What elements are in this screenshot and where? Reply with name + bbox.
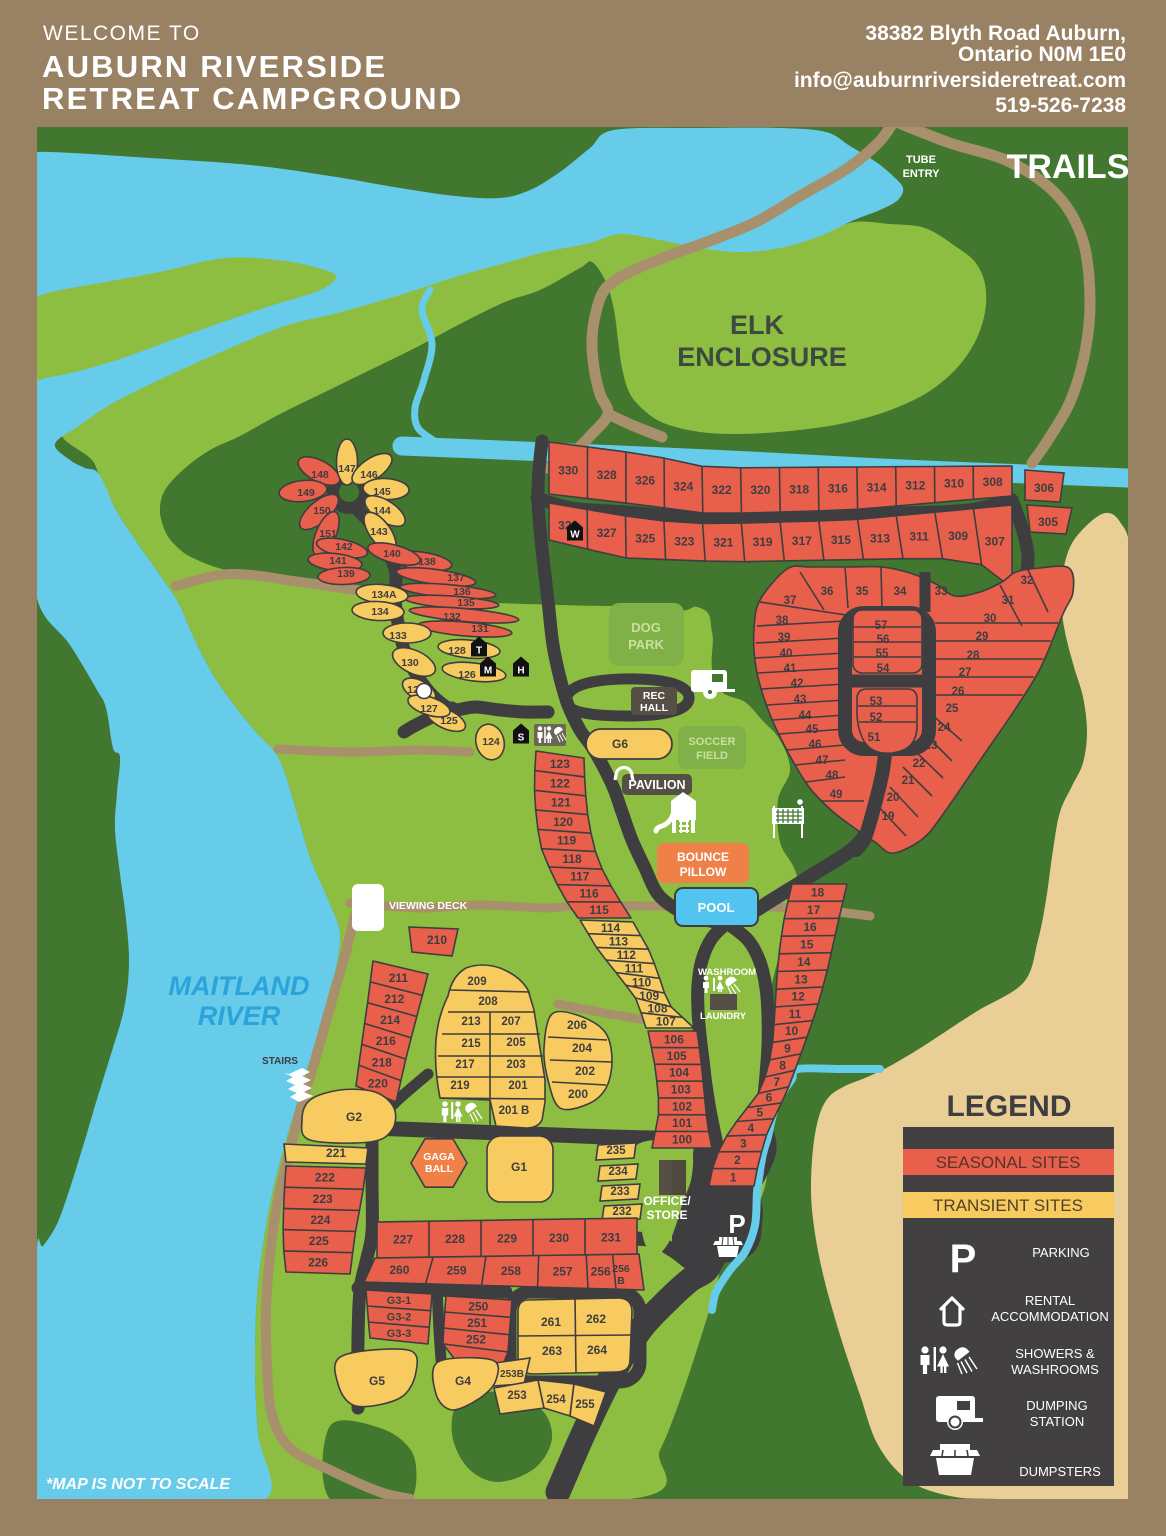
svg-text:227: 227 — [393, 1233, 413, 1247]
svg-text:214: 214 — [380, 1013, 400, 1027]
svg-text:220: 220 — [368, 1076, 388, 1090]
svg-text:38382 Blyth Road Auburn,: 38382 Blyth Road Auburn, — [865, 22, 1126, 45]
svg-text:BOUNCE: BOUNCE — [677, 850, 729, 864]
svg-text:260: 260 — [389, 1263, 409, 1277]
svg-text:G3-1: G3-1 — [387, 1295, 411, 1307]
svg-text:143: 143 — [370, 526, 388, 538]
svg-text:306: 306 — [1034, 481, 1054, 495]
svg-text:232: 232 — [612, 1206, 631, 1218]
svg-text:TUBE: TUBE — [906, 154, 936, 166]
svg-text:DUMPING: DUMPING — [1026, 1398, 1087, 1413]
svg-text:206: 206 — [567, 1018, 587, 1032]
svg-text:126: 126 — [458, 669, 476, 681]
svg-text:55: 55 — [876, 648, 889, 660]
svg-text:251: 251 — [467, 1316, 487, 1330]
svg-text:149: 149 — [297, 487, 315, 499]
svg-text:322: 322 — [712, 483, 732, 497]
svg-text:27: 27 — [959, 667, 972, 679]
svg-text:309: 309 — [948, 529, 968, 543]
svg-text:48: 48 — [826, 770, 839, 782]
svg-text:264: 264 — [587, 1343, 607, 1357]
svg-text:18: 18 — [811, 886, 825, 900]
svg-text:305: 305 — [1038, 515, 1058, 529]
svg-text:30: 30 — [984, 613, 997, 625]
svg-text:17: 17 — [807, 903, 821, 917]
svg-text:131: 131 — [471, 623, 489, 635]
svg-text:21: 21 — [902, 775, 915, 787]
svg-text:328: 328 — [597, 468, 617, 482]
svg-text:42: 42 — [791, 678, 804, 690]
svg-text:320: 320 — [750, 483, 770, 497]
svg-text:OFFICE/: OFFICE/ — [643, 1194, 691, 1208]
svg-text:219: 219 — [450, 1080, 469, 1092]
svg-text:208: 208 — [478, 996, 498, 1008]
svg-text:44: 44 — [799, 710, 812, 722]
svg-text:13: 13 — [794, 972, 808, 986]
svg-text:38: 38 — [776, 615, 789, 627]
svg-text:254: 254 — [546, 1394, 566, 1406]
svg-text:45: 45 — [806, 724, 819, 736]
svg-text:STAIRS: STAIRS — [262, 1056, 298, 1067]
svg-text:130: 130 — [401, 657, 419, 669]
svg-text:STORE: STORE — [646, 1208, 687, 1222]
svg-text:47: 47 — [816, 755, 829, 767]
svg-text:57: 57 — [875, 620, 888, 632]
svg-text:519-526-7238: 519-526-7238 — [995, 94, 1126, 117]
svg-text:327: 327 — [597, 526, 617, 540]
svg-text:WELCOME TO: WELCOME TO — [43, 22, 201, 45]
svg-text:DUMPSTERS: DUMPSTERS — [1019, 1464, 1101, 1479]
svg-text:319: 319 — [753, 535, 773, 549]
svg-text:200: 200 — [568, 1087, 588, 1101]
svg-text:257: 257 — [553, 1264, 573, 1278]
svg-text:307: 307 — [985, 535, 1005, 549]
svg-text:211: 211 — [389, 971, 409, 985]
svg-text:228: 228 — [445, 1232, 465, 1246]
svg-text:224: 224 — [310, 1213, 330, 1227]
svg-text:56: 56 — [877, 634, 890, 646]
svg-text:25: 25 — [946, 703, 959, 715]
svg-text:253B: 253B — [500, 1369, 524, 1380]
svg-text:262: 262 — [586, 1312, 606, 1326]
svg-text:314: 314 — [867, 480, 887, 494]
svg-text:117: 117 — [570, 870, 590, 884]
svg-text:5: 5 — [756, 1106, 763, 1120]
svg-text:41: 41 — [784, 663, 797, 675]
svg-text:PAVILION: PAVILION — [628, 778, 685, 792]
svg-text:326: 326 — [635, 473, 655, 487]
svg-text:TRAILS: TRAILS — [1007, 148, 1130, 186]
svg-text:127: 127 — [420, 703, 438, 715]
svg-text:RETREAT CAMPGROUND: RETREAT CAMPGROUND — [42, 81, 463, 116]
svg-text:263: 263 — [542, 1344, 562, 1358]
svg-text:101: 101 — [672, 1116, 692, 1130]
svg-text:116: 116 — [579, 887, 599, 901]
svg-text:318: 318 — [789, 482, 809, 496]
svg-text:110: 110 — [632, 975, 652, 989]
svg-text:28: 28 — [967, 650, 980, 662]
svg-text:217: 217 — [455, 1059, 474, 1071]
svg-text:RIVER: RIVER — [198, 1001, 281, 1031]
svg-text:111: 111 — [625, 962, 644, 976]
svg-text:203: 203 — [506, 1059, 525, 1071]
svg-text:53: 53 — [870, 696, 883, 708]
svg-text:122: 122 — [550, 776, 570, 790]
svg-text:14: 14 — [797, 955, 811, 969]
svg-text:315: 315 — [831, 533, 851, 547]
svg-text:*MAP IS NOT TO SCALE: *MAP IS NOT TO SCALE — [46, 1476, 231, 1493]
svg-text:215: 215 — [461, 1038, 481, 1050]
svg-text:250: 250 — [468, 1299, 488, 1313]
svg-text:308: 308 — [983, 475, 1003, 489]
svg-text:313: 313 — [870, 531, 890, 545]
svg-text:255: 255 — [575, 1399, 595, 1411]
svg-text:231: 231 — [601, 1230, 621, 1244]
svg-text:256: 256 — [591, 1265, 611, 1279]
svg-text:G3-3: G3-3 — [387, 1328, 411, 1340]
svg-text:210: 210 — [427, 933, 447, 947]
svg-text:32: 32 — [1021, 575, 1034, 587]
svg-text:M: M — [484, 666, 492, 677]
svg-text:115: 115 — [590, 903, 610, 917]
svg-text:10: 10 — [785, 1024, 799, 1038]
svg-text:G3-2: G3-2 — [387, 1312, 411, 1324]
svg-text:PARK: PARK — [628, 637, 664, 652]
svg-text:G4: G4 — [455, 1374, 471, 1388]
svg-text:B: B — [617, 1275, 625, 1287]
svg-text:BALL: BALL — [425, 1163, 454, 1175]
svg-text:114: 114 — [601, 921, 621, 935]
svg-text:SHOWERS &: SHOWERS & — [1015, 1346, 1095, 1361]
svg-text:223: 223 — [313, 1192, 333, 1206]
svg-text:PILLOW: PILLOW — [680, 865, 727, 879]
svg-text:LAUNDRY: LAUNDRY — [700, 1011, 747, 1022]
svg-text:222: 222 — [315, 1171, 335, 1185]
svg-text:138: 138 — [418, 556, 436, 568]
svg-text:259: 259 — [446, 1264, 466, 1278]
svg-text:325: 325 — [635, 532, 655, 546]
svg-text:104: 104 — [669, 1066, 689, 1080]
svg-text:LEGEND: LEGEND — [946, 1090, 1071, 1123]
svg-text:ENTRY: ENTRY — [903, 168, 941, 180]
svg-text:12: 12 — [791, 990, 805, 1004]
svg-text:MAITLAND: MAITLAND — [169, 971, 310, 1001]
svg-text:7: 7 — [773, 1075, 780, 1089]
svg-text:23: 23 — [925, 740, 938, 752]
svg-text:226: 226 — [308, 1255, 328, 1269]
svg-text:134: 134 — [371, 606, 389, 618]
svg-text:SEASONAL SITES: SEASONAL SITES — [936, 1153, 1081, 1172]
svg-text:311: 311 — [909, 529, 929, 543]
svg-text:323: 323 — [674, 534, 694, 548]
svg-text:204: 204 — [572, 1041, 592, 1055]
svg-text:205: 205 — [506, 1037, 526, 1049]
svg-text:REC: REC — [643, 690, 666, 702]
svg-text:225: 225 — [309, 1234, 329, 1248]
svg-text:6: 6 — [766, 1091, 773, 1105]
svg-text:135: 135 — [457, 597, 475, 609]
svg-text:317: 317 — [792, 534, 812, 548]
svg-text:133: 133 — [389, 630, 407, 642]
svg-text:AUBURN RIVERSIDE: AUBURN RIVERSIDE — [42, 49, 387, 84]
svg-text:31: 31 — [1002, 595, 1015, 607]
svg-text:22: 22 — [913, 758, 926, 770]
svg-text:213: 213 — [461, 1016, 480, 1028]
svg-text:134A: 134A — [371, 589, 397, 601]
svg-text:234: 234 — [608, 1166, 628, 1178]
svg-text:121: 121 — [551, 796, 571, 810]
svg-text:35: 35 — [856, 586, 869, 598]
svg-text:106: 106 — [664, 1032, 684, 1046]
svg-text:207: 207 — [501, 1016, 520, 1028]
svg-text:113: 113 — [609, 935, 629, 949]
svg-text:43: 43 — [794, 694, 807, 706]
svg-text:40: 40 — [780, 648, 793, 660]
svg-text:info@auburnriversideretreat.co: info@auburnriversideretreat.com — [794, 69, 1126, 92]
svg-text:DOG: DOG — [631, 620, 661, 635]
svg-text:105: 105 — [667, 1049, 687, 1063]
svg-text:142: 142 — [335, 541, 353, 553]
svg-text:G2: G2 — [346, 1110, 362, 1124]
svg-text:G1: G1 — [511, 1160, 527, 1174]
svg-text:128: 128 — [448, 645, 466, 657]
svg-text:230: 230 — [549, 1231, 569, 1245]
svg-text:W: W — [570, 530, 580, 541]
svg-text:H: H — [517, 666, 524, 677]
svg-text:109: 109 — [639, 989, 659, 1003]
svg-text:218: 218 — [372, 1055, 392, 1069]
svg-text:29: 29 — [976, 631, 989, 643]
svg-text:233: 233 — [610, 1186, 629, 1198]
svg-text:S: S — [518, 733, 525, 744]
svg-text:201 B: 201 B — [499, 1105, 530, 1117]
svg-text:253: 253 — [507, 1390, 526, 1402]
svg-text:49: 49 — [830, 789, 843, 801]
svg-text:11: 11 — [789, 1007, 802, 1021]
svg-text:36: 36 — [821, 586, 834, 598]
svg-text:316: 316 — [828, 482, 848, 496]
svg-text:ACCOMMODATION: ACCOMMODATION — [991, 1309, 1108, 1324]
svg-text:26: 26 — [952, 686, 965, 698]
svg-text:34: 34 — [894, 586, 907, 598]
svg-text:1: 1 — [730, 1170, 737, 1184]
svg-text:P: P — [728, 1209, 745, 1239]
svg-text:324: 324 — [673, 479, 693, 493]
svg-text:321: 321 — [713, 535, 733, 549]
svg-text:SOCCER: SOCCER — [688, 736, 735, 748]
svg-text:123: 123 — [550, 757, 570, 771]
svg-text:TRANSIENT SITES: TRANSIENT SITES — [933, 1196, 1083, 1215]
svg-text:119: 119 — [557, 834, 577, 848]
svg-text:19: 19 — [882, 811, 895, 823]
svg-text:102: 102 — [672, 1099, 692, 1113]
svg-text:51: 51 — [868, 732, 881, 744]
svg-text:330: 330 — [558, 463, 578, 477]
svg-text:310: 310 — [944, 477, 964, 491]
svg-text:261: 261 — [541, 1315, 561, 1329]
svg-text:WASHROOMS: WASHROOMS — [1011, 1362, 1099, 1377]
svg-text:15: 15 — [800, 938, 814, 952]
svg-text:STATION: STATION — [1030, 1414, 1084, 1429]
svg-text:235: 235 — [606, 1145, 626, 1157]
svg-text:G5: G5 — [369, 1374, 385, 1388]
svg-text:54: 54 — [877, 663, 890, 675]
svg-text:ENCLOSURE: ENCLOSURE — [677, 342, 847, 372]
svg-text:HALL: HALL — [640, 702, 669, 714]
svg-text:256: 256 — [612, 1263, 630, 1275]
svg-text:229: 229 — [497, 1232, 517, 1246]
svg-text:FIELD: FIELD — [696, 750, 728, 762]
svg-text:112: 112 — [617, 948, 637, 962]
svg-text:202: 202 — [575, 1064, 595, 1078]
svg-text:VIEWING DECK: VIEWING DECK — [389, 900, 468, 912]
svg-text:118: 118 — [562, 852, 582, 866]
svg-text:16: 16 — [803, 920, 817, 934]
svg-text:T: T — [476, 646, 482, 657]
svg-text:312: 312 — [905, 479, 925, 493]
svg-text:2: 2 — [734, 1153, 741, 1167]
svg-text:GAGA: GAGA — [423, 1151, 455, 1163]
svg-text:4: 4 — [748, 1121, 755, 1135]
svg-text:39: 39 — [778, 632, 791, 644]
svg-text:221: 221 — [326, 1146, 346, 1160]
svg-text:103: 103 — [671, 1083, 691, 1097]
svg-text:201: 201 — [508, 1080, 528, 1092]
svg-text:ELK: ELK — [730, 310, 785, 340]
svg-text:124: 124 — [482, 736, 500, 748]
svg-text:Ontario N0M 1E0: Ontario N0M 1E0 — [958, 43, 1126, 66]
svg-text:216: 216 — [376, 1034, 396, 1048]
svg-text:3: 3 — [740, 1137, 747, 1151]
svg-text:G6: G6 — [612, 737, 628, 751]
svg-text:212: 212 — [384, 992, 404, 1006]
svg-text:PARKING: PARKING — [1032, 1245, 1090, 1260]
svg-text:252: 252 — [466, 1333, 486, 1347]
svg-text:137: 137 — [447, 572, 465, 584]
svg-text:RENTAL: RENTAL — [1025, 1293, 1075, 1308]
svg-text:209: 209 — [467, 976, 486, 988]
svg-text:52: 52 — [870, 712, 883, 724]
svg-text:P: P — [950, 1237, 977, 1281]
svg-text:107: 107 — [656, 1015, 676, 1029]
svg-text:258: 258 — [501, 1264, 521, 1278]
svg-text:140: 140 — [383, 548, 401, 560]
svg-text:139: 139 — [337, 568, 355, 580]
svg-text:33: 33 — [935, 586, 948, 598]
svg-text:POOL: POOL — [698, 900, 735, 915]
svg-text:37: 37 — [784, 595, 797, 607]
svg-text:8: 8 — [779, 1058, 786, 1072]
svg-text:24: 24 — [938, 722, 951, 734]
svg-text:100: 100 — [672, 1133, 692, 1147]
svg-text:120: 120 — [553, 815, 573, 829]
svg-text:46: 46 — [809, 739, 822, 751]
svg-text:148: 148 — [311, 469, 329, 481]
svg-text:141: 141 — [329, 555, 347, 567]
svg-text:9: 9 — [784, 1041, 791, 1055]
svg-text:20: 20 — [887, 792, 900, 804]
